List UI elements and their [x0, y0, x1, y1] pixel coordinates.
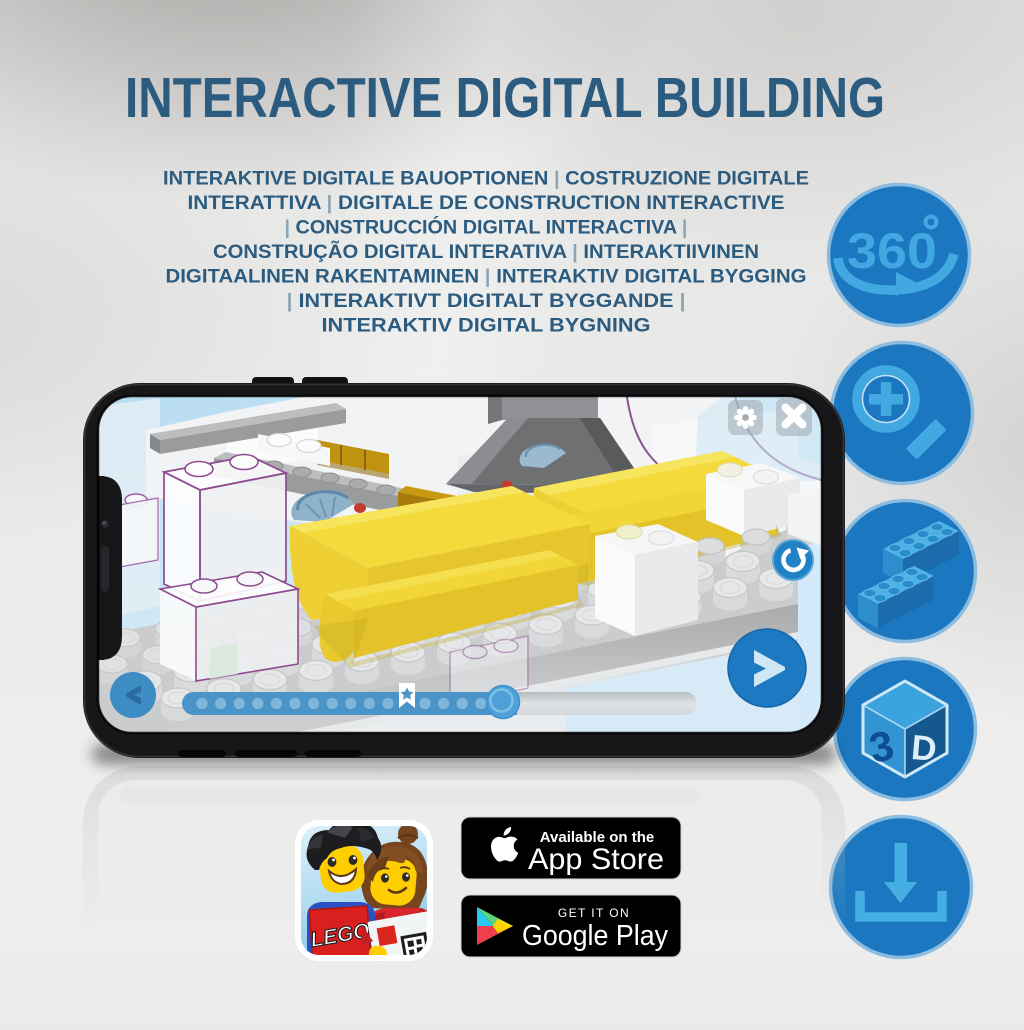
svg-text:Google Play: Google Play [522, 920, 669, 952]
svg-text:App Store: App Store [528, 843, 664, 876]
svg-text:GET IT ON: GET IT ON [558, 906, 630, 920]
